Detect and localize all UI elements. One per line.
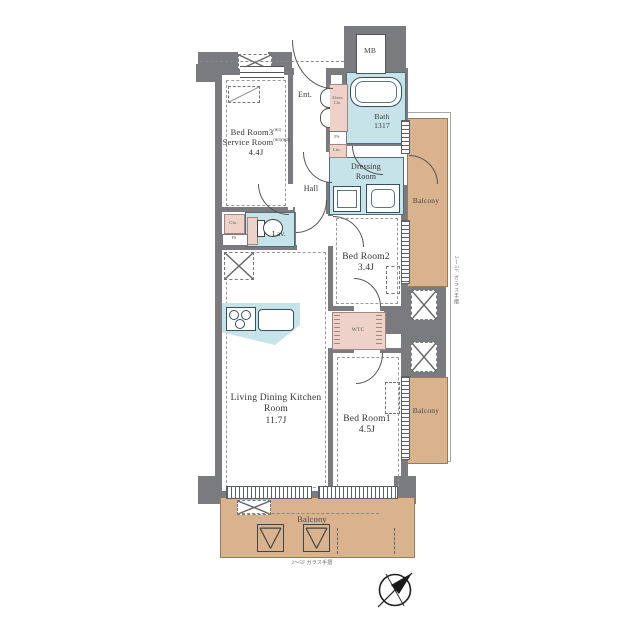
shoes-closet-label: ShoesClo. (329, 96, 346, 106)
lavatory-label: Lav. (266, 229, 292, 238)
window-ldk-balcony (226, 486, 312, 499)
balcony-right-top-label: Balcony (405, 196, 447, 205)
entrance-label: Ent. (290, 90, 320, 100)
dashed-line-top (200, 61, 344, 62)
escape-hatch (303, 524, 330, 552)
window-bedroom2-balcony (401, 220, 410, 284)
shaft-balcony-right-2 (411, 342, 437, 372)
wall-bottom-left-corner (198, 476, 222, 504)
balcony-right-bottom-label: Balcony (405, 406, 447, 415)
kitchen-sink (258, 309, 294, 331)
ps-top-label: PS (329, 134, 345, 139)
wtc-label: WTC (332, 327, 384, 334)
washer-space (333, 186, 361, 212)
floorplan-canvas: MB Ent. Bed Room3(※1) Service Room(※1)(※… (0, 0, 640, 640)
wall-wtc-right-column (384, 306, 402, 334)
bedroom3-label: Bed Room3(※1) Service Room(※1)(※2) 4.4J (219, 127, 293, 158)
shaft-mid-left (224, 252, 254, 280)
window-bedroom3-top (240, 66, 284, 78)
bathtub (350, 77, 402, 107)
note-right-vertical: 2〜5F ガラス手摺 (452, 256, 458, 305)
shoes-closet (329, 84, 348, 132)
wash-basin (366, 184, 400, 213)
washer-pan (337, 190, 357, 208)
balcony-partition-mark (394, 528, 395, 554)
window-dressing-balcony (401, 120, 410, 154)
bedroom1-ac-mark (385, 382, 400, 414)
balcony-partition-mark (337, 528, 338, 554)
compass-north-icon (374, 569, 416, 611)
property-line-top (408, 112, 451, 113)
closet-label: Clo. (224, 220, 243, 225)
stove-burner (241, 310, 251, 320)
note-bottom: 2〜5F ガラス手摺 (252, 561, 372, 567)
ps-left-label: PS (222, 236, 246, 241)
bedroom1-label: Bed Room14.5J (331, 414, 403, 437)
escape-hatch (257, 524, 284, 552)
bedroom2-label: Bed Room23.4J (330, 252, 402, 275)
bathtub-inner (355, 81, 397, 103)
bath-label: Bath1317 (362, 112, 402, 130)
mb-label: MB (356, 46, 384, 55)
balcony-right-bottom (407, 377, 448, 464)
wall-top-left-corner (196, 64, 222, 82)
window-bedroom1-bottom (318, 486, 398, 499)
stove-burner (235, 319, 245, 329)
shaft-balcony-right-1 (411, 290, 437, 320)
ldk-inset (226, 252, 326, 488)
balcony-bottom-label: Balcony (270, 514, 354, 524)
dressing-label: DressingRoom (334, 162, 398, 181)
basin-bowl (371, 189, 395, 208)
property-line-right (450, 112, 451, 462)
shoes-closet-door-arc (320, 108, 330, 128)
bedroom3-size: 4.4J (219, 147, 293, 157)
hall-label: Hall (296, 184, 326, 194)
linen-label: Lin. (329, 147, 345, 152)
ldk-label: Living Dining KitchenRoom11.7J (225, 393, 327, 427)
bedroom3-ceiling-mark (228, 86, 260, 103)
